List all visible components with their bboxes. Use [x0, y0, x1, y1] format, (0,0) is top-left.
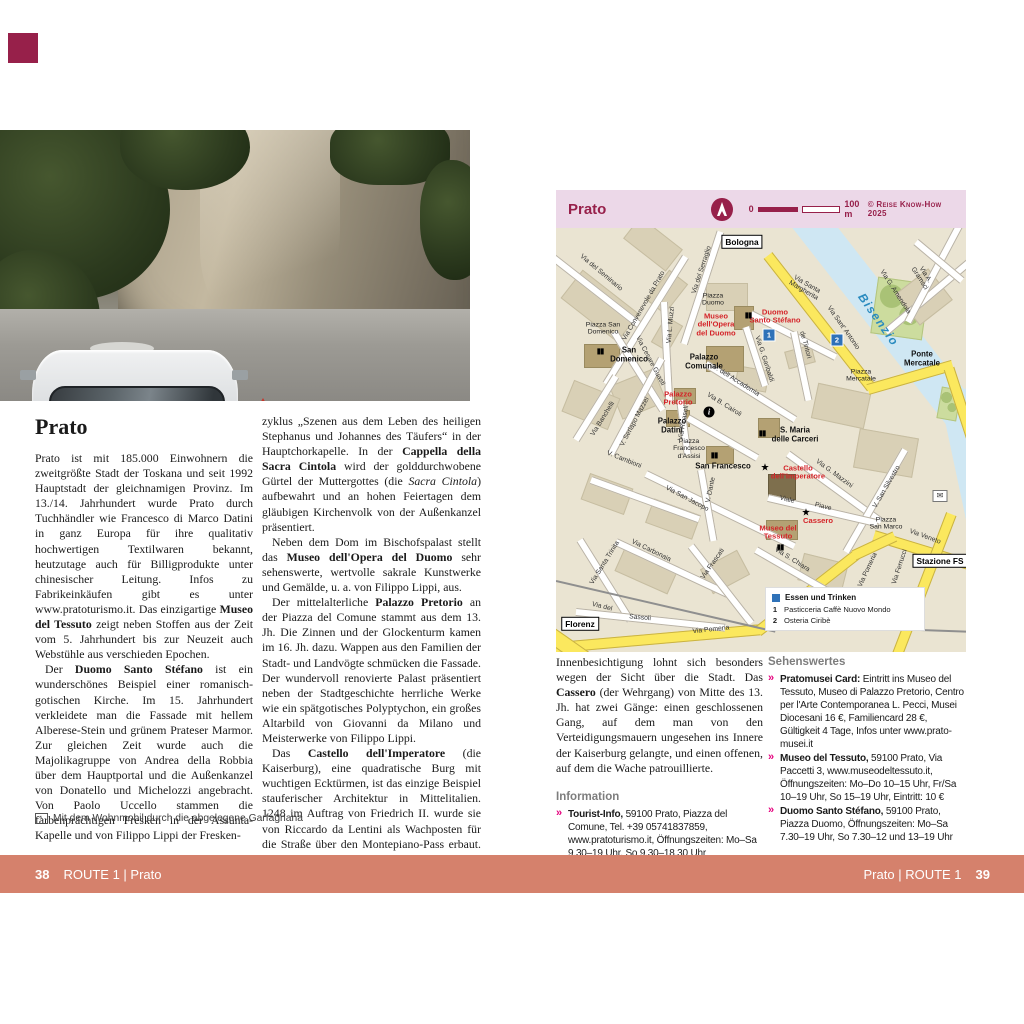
entry-text: Tourist-Info, 59100 Prato, Piazza del Co…	[568, 809, 757, 859]
legend-item-label: Pasticceria Caffè Nuovo Mondo	[784, 605, 891, 614]
page-number-right: 39	[976, 867, 990, 882]
place-piazza-san-domenico: Piazza San Domenico	[586, 322, 620, 337]
poi-san-francesco: San Francesco	[695, 463, 750, 472]
map-title: Prato	[568, 201, 606, 218]
sight-entry-pratomusei-card: » Pratomusei Card: Eintritt ins Museo de…	[768, 673, 966, 751]
section-heading-information: Information	[556, 790, 763, 805]
legend-title-text: Essen und Trinken	[785, 593, 856, 602]
chevron-icon: »	[556, 807, 562, 820]
photo-reference-icon: ↖	[35, 813, 48, 824]
poi-castello-imperatore: Castello dell'Imperatore	[771, 465, 825, 482]
map-building	[623, 228, 683, 272]
legend-item-label: Osteria Ciribè	[784, 616, 830, 625]
place-piazza-mercatale: Piazza Mercatale	[846, 369, 876, 384]
motorhome-mirror-left	[20, 370, 36, 380]
poi-ponte-mercatale: Ponte Mercatale	[904, 350, 940, 367]
page-number-left: 38	[35, 867, 49, 882]
motorhome-mirror-right	[232, 370, 248, 380]
section-heading-sehenswertes: Sehenswertes	[768, 655, 966, 670]
page-footer-band: 38 ROUTE 1 | Prato Prato | ROUTE 1 39	[0, 855, 1024, 893]
church-icon-san-domenico: ▮▮	[597, 348, 604, 357]
warning-sign-icon	[249, 398, 277, 401]
scale-segment-empty	[802, 206, 841, 213]
legend-item-number: 1	[772, 605, 778, 614]
sign-florenz: Florenz	[561, 617, 599, 631]
sight-entry-duomo-santo-stefano: » Duomo Santo Stéfano, 59100 Prato, Piaz…	[768, 805, 966, 844]
church-icon-san-francesco: ▮▮	[711, 452, 718, 461]
church-icon-s-maria: ▮▮	[759, 430, 766, 439]
photo-motorhome: HYMER	[32, 342, 238, 401]
paragraph: Innenbesichtigung lohnt sich besonders w…	[556, 655, 763, 776]
chevron-icon: »	[768, 804, 774, 817]
legend-title: Essen und Trinken	[772, 593, 918, 602]
page-title: Prato	[35, 414, 88, 440]
footer-label-right: Prato | ROUTE 1	[864, 867, 962, 882]
legend-color-swatch	[772, 594, 780, 602]
entry-text: Pratomusei Card: Eintritt ins Museo del …	[780, 674, 964, 750]
left-page-column-2: zyklus „Szenen aus dem Leben des heilige…	[262, 414, 481, 867]
scale-zero: 0	[749, 204, 754, 214]
footer-left: 38 ROUTE 1 | Prato	[35, 867, 161, 882]
legend-item: 1 Pasticceria Caffè Nuovo Mondo	[772, 605, 918, 614]
scale-segment-filled	[758, 207, 798, 212]
street-via-ferrucci: Via Ferrucci	[891, 549, 909, 586]
star-castello: ★	[761, 463, 770, 474]
chevron-icon: »	[768, 672, 774, 685]
star-cassero: ★	[802, 508, 811, 519]
photo-caption-text: Mit dem Wohnmobil durch die abgelegene G…	[53, 813, 303, 824]
info-entry-tourist-info: » Tourist-Info, 59100 Prato, Piazza del …	[556, 808, 763, 860]
compass-icon	[711, 198, 732, 221]
map-header: Prato 0 100 m © Reise Know-How 2025	[556, 190, 966, 228]
map-legend: Essen und Trinken 1 Pasticceria Caffè Nu…	[766, 588, 924, 630]
tourist-info-icon: i	[704, 407, 715, 418]
legend-item: 2 Osteria Ciribè	[772, 616, 918, 625]
paragraph: Neben dem Dom im Bischofspalast stellt d…	[262, 535, 481, 595]
place-piazza-duomo: Piazza Duomo	[702, 293, 724, 308]
sight-entry-museo-del-tessuto: » Museo del Tessuto, 59100 Prato, Via Pa…	[768, 752, 966, 804]
scale-max: 100 m	[844, 199, 867, 219]
right-page-column-2: Sehenswertes » Pratomusei Card: Eintritt…	[768, 655, 966, 845]
street-v-cambioni: V. Cambioni	[606, 450, 643, 471]
left-page-column-1: Prato ist mit 185.000 Einwohnern die zwe…	[35, 451, 253, 843]
poi-s-maria-delle-carceri: S. Maria delle Carceri	[772, 426, 819, 443]
sign-stazione-fs: Stazione FS	[912, 554, 966, 568]
chevron-icon: »	[768, 751, 774, 764]
map-building	[811, 383, 871, 429]
poi-museo-opera-duomo: Museo dell'Opera del Duomo	[696, 312, 735, 337]
map-canvas: Via del SeminarioVia Convenevole da Prat…	[556, 228, 966, 652]
poi-duomo-santo-stefano: Duomo Santo Stéfano	[749, 309, 800, 326]
place-piazza-francesco-assisi: Piazza Francesco d'Assisi	[673, 438, 705, 460]
map-building	[853, 428, 919, 478]
entry-text: Museo del Tessuto, 59100 Prato, Via Pacc…	[780, 753, 956, 803]
paragraph: Prato ist mit 185.000 Einwohnern die zwe…	[35, 451, 253, 662]
paragraph: Der mittelalterliche Palazzo Pretorio an…	[262, 595, 481, 746]
photo-motorhome-garfagnana: HYMER	[0, 130, 470, 401]
poi-museo-del-tessuto: Museo del Tessuto	[759, 525, 796, 542]
right-page-column-1: Innenbesichtigung lohnt sich besonders w…	[556, 655, 763, 861]
map-scale-bar: 0 100 m	[749, 199, 868, 219]
paragraph: Das Castello dell'Imperatore (die Kaiser…	[262, 746, 481, 867]
motorhome-windshield	[49, 386, 225, 401]
legend-item-number: 2	[772, 616, 778, 625]
footer-right: Prato | ROUTE 1 39	[864, 867, 990, 882]
footer-label-left: ROUTE 1 | Prato	[63, 867, 161, 882]
photo-caption: ↖ Mit dem Wohnmobil durch die abgelegene…	[35, 813, 335, 824]
paragraph: zyklus „Szenen aus dem Leben des heilige…	[262, 414, 481, 535]
marker-2: 2	[831, 334, 844, 347]
sign-bologna: Bologna	[721, 235, 762, 249]
place-piazza-san-marco: Piazza San Marco	[870, 517, 903, 532]
post-office-icon: ✉	[933, 490, 948, 502]
map-copyright: © Reise Know-How 2025	[868, 200, 956, 218]
route-color-tab	[8, 33, 38, 63]
city-map-prato: Prato 0 100 m © Reise Know-How 2025 Via …	[556, 190, 966, 652]
entry-text: Duomo Santo Stéfano, 59100 Prato, Piazza…	[780, 806, 953, 843]
marker-1: 1	[763, 329, 776, 342]
church-icon-duomo: ▮▮	[745, 312, 752, 321]
